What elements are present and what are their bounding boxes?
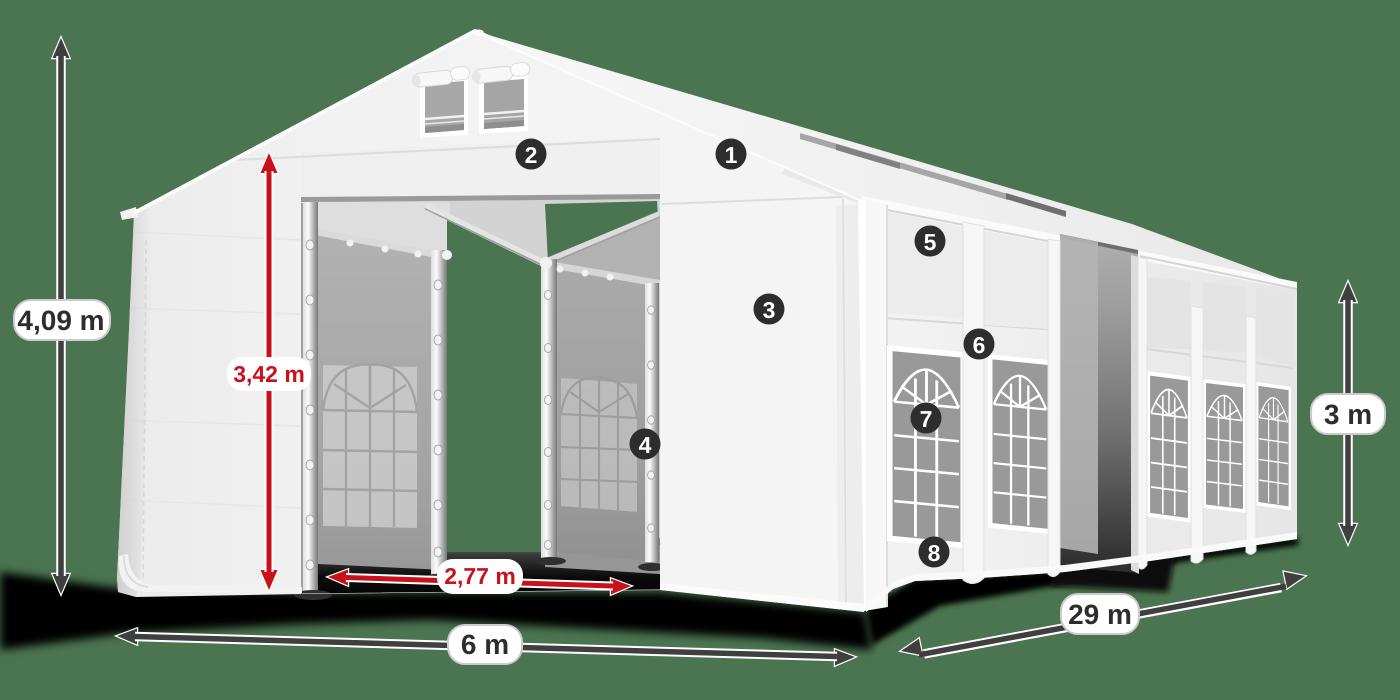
svg-text:3: 3 — [763, 297, 776, 323]
svg-text:6 m: 6 m — [461, 629, 509, 660]
svg-text:7: 7 — [920, 406, 933, 432]
svg-text:6: 6 — [973, 332, 986, 358]
svg-text:1: 1 — [725, 142, 738, 168]
svg-text:29 m: 29 m — [1068, 599, 1132, 630]
svg-text:3,42 m: 3,42 m — [233, 361, 305, 387]
svg-text:4,09 m: 4,09 m — [17, 305, 104, 336]
svg-text:5: 5 — [924, 229, 937, 255]
svg-text:2: 2 — [525, 142, 538, 168]
svg-text:4: 4 — [639, 432, 652, 458]
svg-text:3 m: 3 m — [1324, 399, 1372, 430]
svg-text:2,77 m: 2,77 m — [444, 563, 516, 589]
svg-text:8: 8 — [928, 540, 941, 566]
